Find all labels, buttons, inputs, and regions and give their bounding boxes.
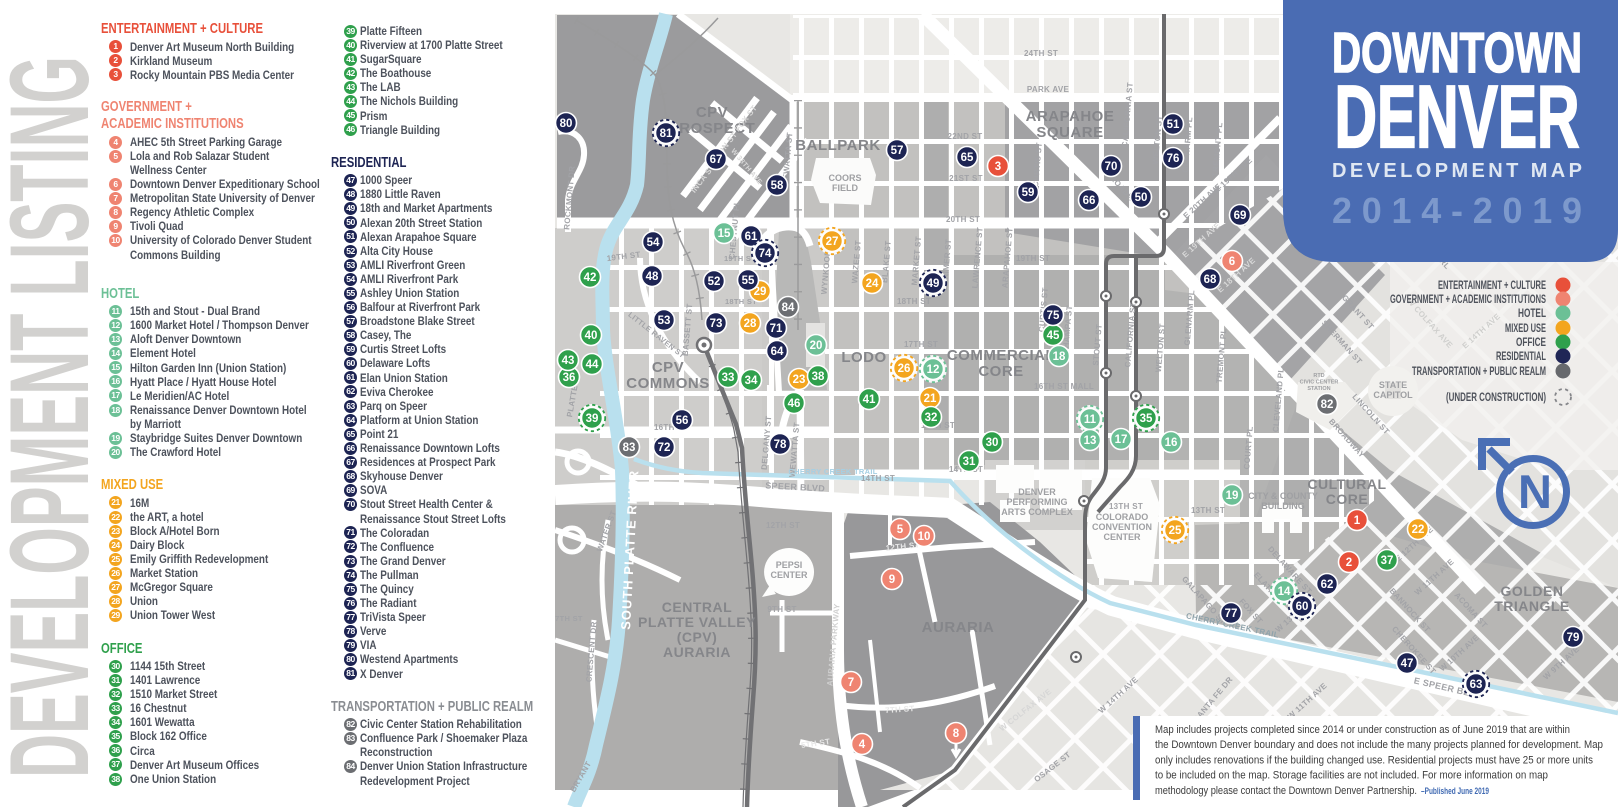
svg-text:74: 74	[759, 248, 772, 260]
svg-text:41: 41	[863, 394, 876, 406]
svg-text:LODO: LODO	[841, 349, 886, 366]
svg-text:ARAPAHOE: ARAPAHOE	[1026, 108, 1115, 125]
svg-text:16: 16	[1165, 437, 1178, 449]
svg-text:50: 50	[1135, 192, 1148, 204]
svg-text:42: 42	[584, 272, 597, 284]
svg-text:43: 43	[562, 355, 575, 367]
svg-text:6: 6	[1229, 256, 1235, 268]
svg-text:17: 17	[1115, 434, 1128, 446]
svg-text:16TH ST MALL: 16TH ST MALL	[1034, 382, 1094, 391]
svg-text:26: 26	[898, 363, 911, 375]
svg-text:COMMONS: COMMONS	[626, 375, 710, 392]
svg-text:59: 59	[1022, 187, 1035, 199]
svg-text:PEPSI: PEPSI	[776, 560, 803, 570]
svg-text:84: 84	[782, 302, 795, 314]
svg-text:SQUARE: SQUARE	[1036, 124, 1103, 141]
svg-text:12TH ST: 12TH ST	[766, 521, 800, 530]
svg-text:the Downtown Denver boundary a: the Downtown Denver boundary and does no…	[1155, 739, 1603, 751]
svg-text:13: 13	[1084, 435, 1097, 447]
svg-text:78: 78	[774, 439, 787, 451]
svg-text:methodology please contact the: methodology please contact the Downtown …	[1155, 785, 1417, 797]
svg-text:PLATTE VALLEY: PLATTE VALLEY	[638, 614, 756, 630]
svg-text:GOVERNMENT + ACADEMIC INSTITUT: GOVERNMENT + ACADEMIC INSTITUTIONS	[1390, 294, 1546, 306]
svg-text:7: 7	[848, 677, 854, 689]
svg-text:OFFICE: OFFICE	[1516, 337, 1546, 349]
svg-text:CITY & COUNTY: CITY & COUNTY	[1248, 491, 1318, 501]
svg-text:67: 67	[710, 154, 723, 166]
svg-text:72: 72	[658, 442, 671, 454]
svg-text:TRIANGLE: TRIANGLE	[1494, 598, 1570, 614]
svg-text:83: 83	[623, 442, 636, 454]
svg-text:81: 81	[660, 128, 673, 140]
svg-text:COORS: COORS	[828, 173, 861, 183]
svg-text:23: 23	[793, 374, 806, 386]
svg-text:CENTER: CENTER	[770, 570, 808, 580]
svg-text:76: 76	[1167, 153, 1180, 165]
svg-text:45: 45	[1047, 330, 1060, 342]
svg-text:PARK AVE: PARK AVE	[1027, 85, 1070, 94]
svg-text:55: 55	[742, 275, 755, 287]
svg-text:49: 49	[927, 278, 940, 290]
svg-text:8: 8	[953, 728, 960, 740]
svg-text:66: 66	[1083, 195, 1096, 207]
svg-text:2014-2019: 2014-2019	[1332, 190, 1582, 231]
svg-text:DEVELOPMENT MAP: DEVELOPMENT MAP	[1332, 160, 1582, 182]
svg-text:47: 47	[1401, 658, 1414, 670]
svg-text:CAPITOL: CAPITOL	[1373, 390, 1413, 400]
svg-text:82: 82	[1321, 399, 1334, 411]
svg-text:48: 48	[646, 271, 659, 283]
svg-text:ENTERTAINMENT + CULTURE: ENTERTAINMENT + CULTURE	[1438, 280, 1546, 292]
svg-text:51: 51	[1167, 119, 1180, 131]
svg-text:RTD: RTD	[1313, 373, 1324, 379]
svg-text:BUILDING: BUILDING	[1261, 501, 1305, 511]
svg-text:21ST ST: 21ST ST	[949, 174, 983, 183]
svg-text:27: 27	[826, 236, 839, 248]
svg-text:54: 54	[647, 237, 660, 249]
svg-text:CPV: CPV	[696, 104, 728, 121]
svg-text:57: 57	[891, 145, 904, 157]
svg-text:CPV: CPV	[652, 359, 684, 376]
svg-text:Map includes projects complete: Map includes projects completed since 20…	[1155, 724, 1570, 736]
svg-text:18TH ST: 18TH ST	[897, 297, 931, 306]
svg-text:2: 2	[1346, 557, 1352, 569]
svg-text:24TH ST: 24TH ST	[1024, 49, 1058, 58]
svg-text:15: 15	[718, 228, 731, 240]
svg-text:13TH ST: 13TH ST	[1191, 506, 1225, 515]
svg-text:22ND ST: 22ND ST	[948, 132, 983, 141]
svg-text:80: 80	[560, 118, 573, 130]
svg-text:14: 14	[1278, 586, 1291, 598]
svg-text:CORE: CORE	[978, 363, 1023, 380]
svg-text:COMMERCIAL: COMMERCIAL	[947, 347, 1055, 364]
svg-text:RESIDENTIAL: RESIDENTIAL	[1496, 351, 1546, 363]
svg-text:75: 75	[1047, 310, 1060, 322]
svg-text:31: 31	[963, 456, 976, 468]
svg-text:9: 9	[889, 574, 895, 586]
svg-text:FIELD: FIELD	[832, 183, 858, 193]
svg-text:12: 12	[927, 364, 940, 376]
svg-text:5: 5	[897, 524, 904, 536]
svg-text:CONVENTION: CONVENTION	[1092, 522, 1152, 532]
svg-text:11: 11	[1084, 414, 1097, 426]
svg-text:BALLPARK: BALLPARK	[795, 137, 880, 154]
svg-text:only includes renovations if t: only includes renovations if the buildin…	[1155, 754, 1594, 766]
svg-text:20: 20	[810, 340, 823, 352]
svg-text:(CPV): (CPV)	[677, 629, 718, 645]
svg-text:58: 58	[771, 180, 784, 192]
svg-text:22: 22	[1412, 524, 1425, 536]
svg-text:CIVIC CENTER: CIVIC CENTER	[1300, 380, 1339, 386]
svg-text:4: 4	[859, 739, 866, 751]
svg-text:DEVELOPMENT LISTING: DEVELOPMENT LISTING	[0, 56, 100, 778]
svg-text:77: 77	[1225, 608, 1238, 620]
svg-text:ARTS COMPLEX: ARTS COMPLEX	[1001, 507, 1073, 517]
svg-text:60: 60	[1296, 601, 1309, 613]
svg-text:20TH ST: 20TH ST	[946, 215, 980, 224]
svg-text:DENVER: DENVER	[1335, 67, 1580, 166]
svg-text:34: 34	[745, 375, 758, 387]
svg-text:9TH ST: 9TH ST	[767, 605, 796, 614]
svg-text:70: 70	[1105, 161, 1118, 173]
svg-text:TRANSPORTATION + PUBLIC REALM: TRANSPORTATION + PUBLIC REALM	[1412, 366, 1546, 378]
svg-text:61: 61	[745, 231, 758, 243]
svg-text:52: 52	[708, 276, 721, 288]
svg-text:71: 71	[770, 323, 783, 335]
svg-text:CULTURAL: CULTURAL	[1307, 476, 1386, 492]
svg-text:3: 3	[995, 161, 1001, 173]
svg-text:28: 28	[744, 318, 757, 330]
svg-text:53: 53	[658, 315, 671, 327]
svg-text:56: 56	[676, 415, 689, 427]
svg-text:7TH ST: 7TH ST	[555, 614, 583, 623]
svg-text:38: 38	[812, 371, 825, 383]
svg-text:CENTRAL: CENTRAL	[662, 599, 732, 615]
svg-text:33: 33	[722, 372, 735, 384]
svg-text:N: N	[1518, 465, 1552, 518]
svg-text:30: 30	[986, 437, 999, 449]
svg-text:AURARIA: AURARIA	[922, 619, 995, 636]
svg-text:14TH ST: 14TH ST	[861, 474, 895, 483]
svg-text:17TH ST: 17TH ST	[904, 340, 938, 349]
svg-text:40: 40	[585, 330, 598, 342]
svg-text:32: 32	[925, 412, 938, 424]
svg-text:62: 62	[1321, 579, 1334, 591]
svg-text:10: 10	[918, 531, 931, 543]
svg-text:18: 18	[1053, 351, 1066, 363]
svg-text:21: 21	[924, 393, 937, 405]
svg-text:(UNDER CONSTRUCTION): (UNDER CONSTRUCTION)	[1446, 392, 1546, 404]
svg-text:19TH ST: 19TH ST	[1016, 254, 1050, 263]
svg-text:HOTEL: HOTEL	[1518, 308, 1546, 320]
svg-text:46: 46	[788, 398, 801, 410]
svg-text:25: 25	[1169, 525, 1182, 537]
svg-text:CENTER: CENTER	[1103, 532, 1141, 542]
svg-text:63: 63	[1470, 679, 1483, 691]
svg-text:PERFORMING: PERFORMING	[1006, 497, 1067, 507]
svg-text:AURARIA: AURARIA	[663, 644, 731, 660]
svg-text:19: 19	[1226, 490, 1239, 502]
svg-text:1: 1	[1354, 515, 1361, 527]
svg-text:GOLDEN: GOLDEN	[1501, 583, 1564, 599]
svg-text:to be included on the map. Sto: to be included on the map. Storage facil…	[1155, 770, 1548, 782]
svg-text:DENVER: DENVER	[1018, 487, 1056, 497]
svg-text:CORE: CORE	[1326, 491, 1368, 507]
svg-text:STATION: STATION	[1307, 386, 1330, 392]
svg-text:–Published June 2019: –Published June 2019	[1421, 786, 1489, 797]
svg-text:37: 37	[1381, 555, 1394, 567]
svg-text:64: 64	[771, 346, 784, 358]
svg-text:36: 36	[563, 372, 576, 384]
svg-text:69: 69	[1234, 210, 1247, 222]
svg-text:MIXED USE: MIXED USE	[1505, 323, 1546, 335]
svg-text:13TH ST: 13TH ST	[1109, 502, 1143, 511]
svg-text:35: 35	[1140, 413, 1153, 425]
svg-text:44: 44	[586, 359, 599, 371]
svg-text:COLORADO: COLORADO	[1096, 512, 1149, 522]
svg-text:STATE: STATE	[1379, 380, 1407, 390]
svg-text:79: 79	[1567, 632, 1580, 644]
svg-text:39: 39	[586, 413, 599, 425]
svg-text:65: 65	[961, 152, 974, 164]
svg-text:73: 73	[710, 318, 723, 330]
svg-text:24: 24	[866, 278, 879, 290]
svg-text:68: 68	[1204, 274, 1217, 286]
